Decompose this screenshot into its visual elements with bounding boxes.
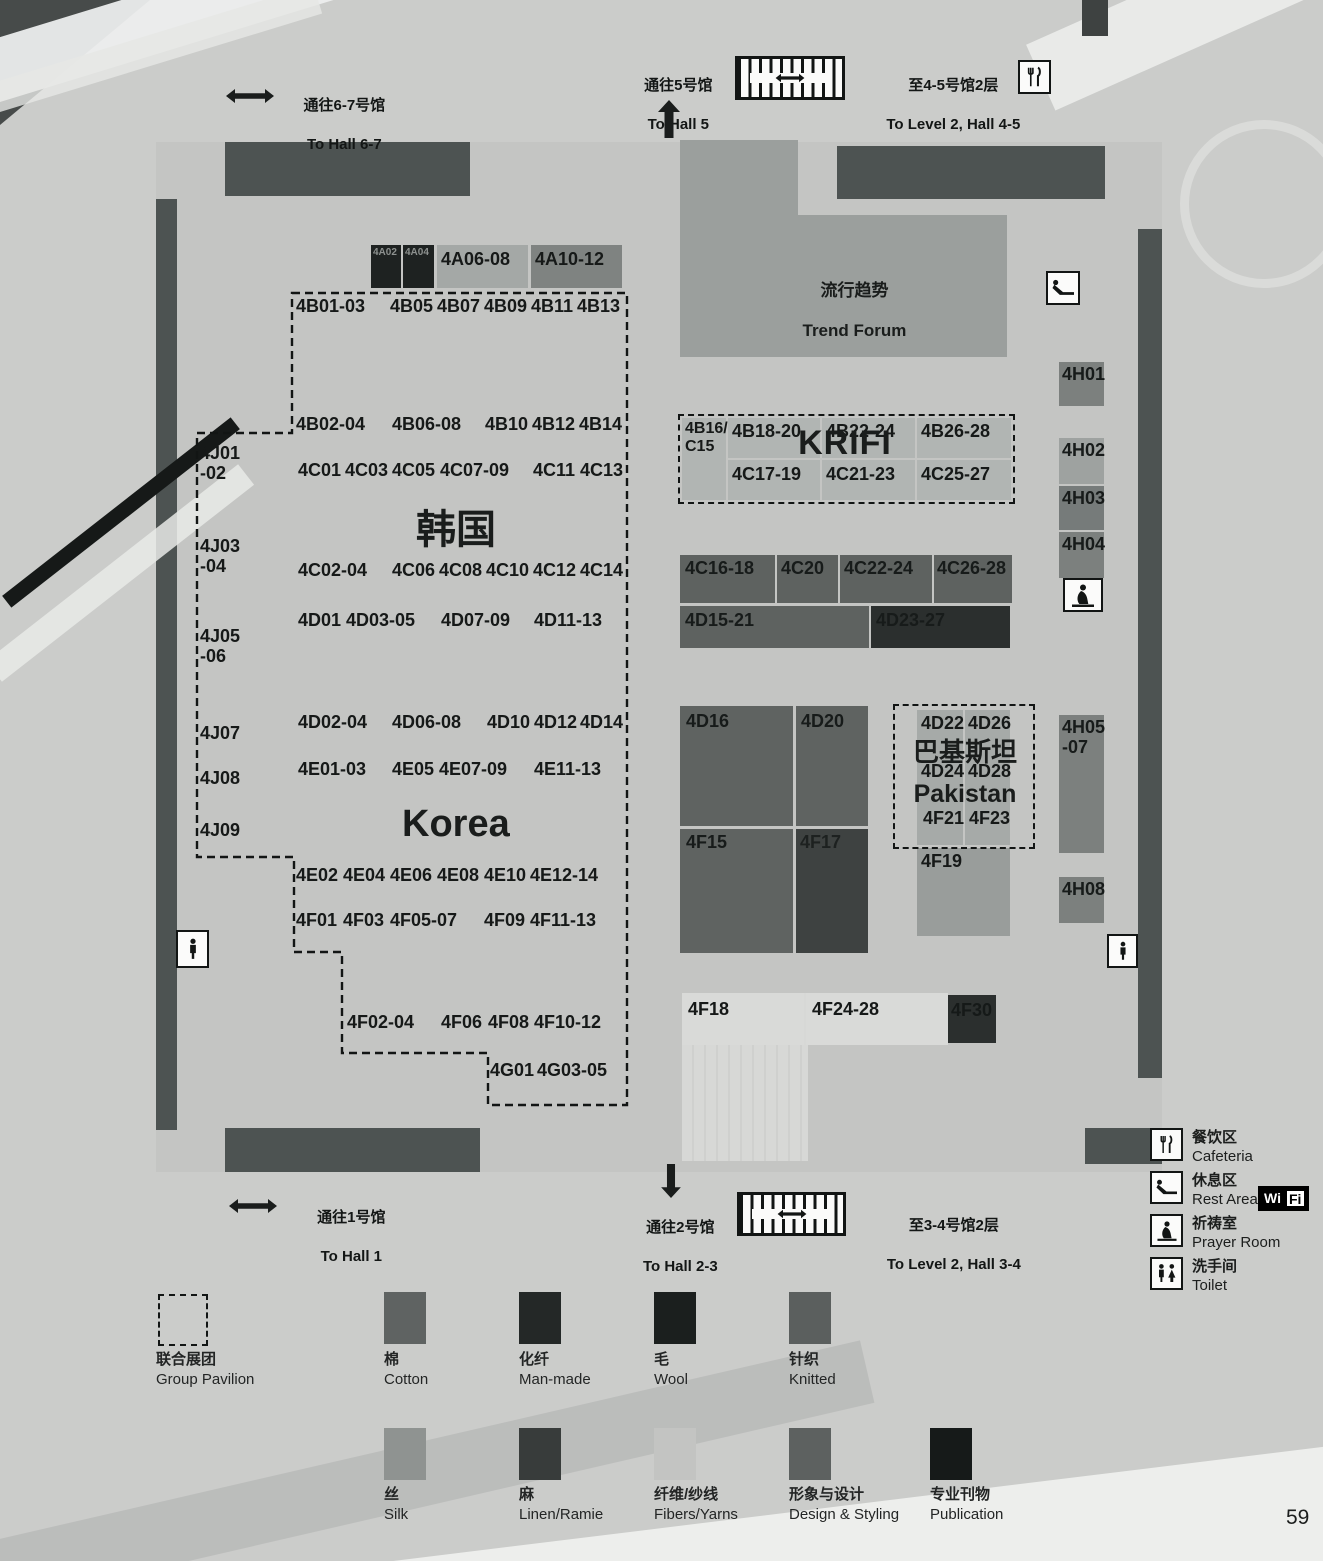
nav-to-level2-hall-4-5: 至4-5号馆2层 To Level 2, Hall 4-5 <box>860 56 1030 155</box>
toilet-label-cn: 洗手间 <box>1192 1257 1237 1277</box>
rest-area-icon <box>1150 1171 1183 1204</box>
cafeteria-label-cn: 餐饮区 <box>1192 1128 1237 1148</box>
booth-4f06: 4F06 <box>441 1012 482 1032</box>
booth-4a04: 4A04 <box>405 247 429 258</box>
booth-4c08: 4C08 <box>439 560 482 580</box>
booth-4f23: 4F23 <box>969 808 1010 828</box>
booth-4e01-03: 4E01-03 <box>298 759 366 779</box>
legend-design-styling-cn: 形象与设计 <box>789 1484 864 1506</box>
nav-to-hall-5-cn: 通往5号馆 <box>644 77 712 94</box>
booth-4h01: 4H01 <box>1062 364 1105 384</box>
booth-4h08: 4H08 <box>1062 879 1105 899</box>
booth-4c03: 4C03 <box>345 460 388 480</box>
toilet-icon <box>1150 1257 1183 1290</box>
booth-4b05: 4B05 <box>390 296 433 316</box>
rest-area-icon <box>1046 271 1080 305</box>
legend-wool-cn: 毛 <box>654 1349 669 1371</box>
booth-4f03: 4F03 <box>343 910 384 930</box>
booth-4g03-05: 4G03-05 <box>537 1060 607 1080</box>
legend-swatch-design-styling <box>789 1428 831 1480</box>
booth-c15: C15 <box>685 438 714 456</box>
stairs-arrow <box>750 73 829 84</box>
prayer-room-label-cn: 祈祷室 <box>1192 1214 1237 1234</box>
booth-4d07-09: 4D07-09 <box>441 610 510 630</box>
legend-design-styling-en: Design & Styling <box>789 1504 899 1526</box>
booth-4d28: 4D28 <box>968 761 1011 781</box>
booth-4b26-28: 4B26-28 <box>921 421 990 441</box>
booth-4d22: 4D22 <box>921 713 964 733</box>
booth-4b12: 4B12 <box>532 414 575 434</box>
booth-4h05: 4H05 <box>1062 717 1105 737</box>
prayer-room-label-en: Prayer Room <box>1192 1233 1280 1253</box>
booth-4d16: 4D16 <box>686 711 729 731</box>
booth-4f05-07: 4F05-07 <box>390 910 457 930</box>
stairs-to-level2-hall34 <box>737 1192 846 1236</box>
booth-4a10-12: 4A10-12 <box>535 249 604 269</box>
legend-swatch-publication <box>930 1428 972 1480</box>
booth-4b16: 4B16/ <box>685 420 728 438</box>
booth-4e10: 4E10 <box>484 865 526 885</box>
booth-4h05-07: -07 <box>1062 737 1088 757</box>
legend-publication-cn: 专业刊物 <box>930 1484 990 1506</box>
booth-4c26-28: 4C26-28 <box>937 558 1006 578</box>
toilet-icon-left <box>176 930 209 968</box>
booth-4b13: 4B13 <box>577 296 620 316</box>
nav-to-level2-hall-3-4: 至3-4号馆2层 To Level 2, Hall 3-4 <box>858 1196 1033 1295</box>
booth-4f17: 4F17 <box>800 832 841 852</box>
up-arrow-icon <box>658 100 680 138</box>
nav-to-hall-2-3-cn: 通往2号馆 <box>646 1219 714 1236</box>
booth-4d20: 4D20 <box>801 711 844 731</box>
booth-4j09: 4J09 <box>200 820 240 840</box>
booth-4b07: 4B07 <box>437 296 480 316</box>
cafeteria-label-en: Cafeteria <box>1192 1147 1253 1167</box>
booth-4j01-02: -02 <box>200 463 226 483</box>
booth-4j05: 4J05 <box>200 626 240 646</box>
booth-4f24-28: 4F24-28 <box>812 999 879 1019</box>
booth-4c10: 4C10 <box>486 560 529 580</box>
pakistan-label-en: Pakistan <box>893 780 1037 809</box>
legend-silk-en: Silk <box>384 1504 408 1526</box>
booth-4c16-18: 4C16-18 <box>685 558 754 578</box>
booth-4f19: 4F19 <box>921 851 962 871</box>
nav-to-hall-2-3-en: To Hall 2-3 <box>643 1258 718 1275</box>
wifi-badge: Wi Fi <box>1258 1186 1309 1211</box>
stairs-arrow <box>752 1209 830 1220</box>
booth-4e06: 4E06 <box>390 865 432 885</box>
nav-to-hall-6-7-cn: 通往6-7号馆 <box>303 97 385 114</box>
hall-wall-right <box>1138 229 1162 1078</box>
prayer-room-icon <box>1063 578 1103 612</box>
booth-4a02: 4A02 <box>373 247 397 258</box>
pakistan-label-cn: 巴基斯坦 <box>895 732 1035 769</box>
booth-4e05: 4E05 <box>392 759 434 779</box>
booth-4c07-09: 4C07-09 <box>440 460 509 480</box>
booth-4b02-04: 4B02-04 <box>296 414 365 434</box>
nav-to-hall-2-3: 通往2号馆 To Hall 2-3 <box>616 1198 728 1297</box>
trend-forum-en: Trend Forum <box>803 321 907 340</box>
booth-4d12: 4D12 <box>534 712 577 732</box>
double-arrow-icon <box>225 86 275 106</box>
legend-publication-en: Publication <box>930 1504 1003 1526</box>
booth-4e02: 4E02 <box>296 865 338 885</box>
korea-label-en: Korea <box>402 803 510 846</box>
trend-forum-cn: 流行趋势 <box>820 281 888 300</box>
toilet-label-en: Toilet <box>1192 1276 1227 1296</box>
nav-to-hall-1-en: To Hall 1 <box>321 1248 382 1265</box>
booth-4g01: 4G01 <box>490 1060 534 1080</box>
booth-4c11: 4C11 <box>533 460 575 480</box>
nav-to-level2-hall-3-4-cn: 至3-4号馆2层 <box>909 1217 999 1234</box>
booth-4b01-03: 4B01-03 <box>296 296 365 316</box>
booth-4c22-24: 4C22-24 <box>844 558 913 578</box>
booth-4f01: 4F01 <box>296 910 337 930</box>
booth-4j03-04: -04 <box>200 556 226 576</box>
legend-man-made-cn: 化纤 <box>519 1349 549 1371</box>
booth-4f11-13: 4F11-13 <box>530 910 596 930</box>
booth-4c01: 4C01 <box>298 460 341 480</box>
scan-mark <box>1082 0 1108 36</box>
booth-4e11-13: 4E11-13 <box>534 759 601 779</box>
booth-4b10: 4B10 <box>485 414 528 434</box>
booth-4j03: 4J03 <box>200 536 240 556</box>
krifi-label: KRIFI <box>760 424 930 463</box>
hall-wall-bottom-left <box>225 1128 480 1172</box>
booth-4b14: 4B14 <box>579 414 622 434</box>
booth-4d03-05: 4D03-05 <box>346 610 415 630</box>
booth-4b09: 4B09 <box>484 296 527 316</box>
legend-swatch-linen-ramie <box>519 1428 561 1480</box>
booth-4j01: 4J01 <box>200 443 240 463</box>
toilet-icon-right <box>1107 934 1138 968</box>
legend-swatch-fibers-yarns <box>654 1428 696 1480</box>
cafeteria-icon <box>1150 1128 1183 1161</box>
booth-4j05-06: -06 <box>200 646 226 666</box>
booth-4d02-04: 4D02-04 <box>298 712 367 732</box>
booth-4d26: 4D26 <box>968 713 1011 733</box>
booth-4d23-27: 4D23-27 <box>876 610 945 630</box>
booth-4c13: 4C13 <box>580 460 623 480</box>
hall-wall-left <box>156 199 177 1130</box>
nav-to-hall-6-7: 通往6-7号馆 To Hall 6-7 <box>280 76 392 175</box>
booth-4c06: 4C06 <box>392 560 435 580</box>
legend-cotton-cn: 棉 <box>384 1349 399 1371</box>
nav-to-level2-hall-3-4-en: To Level 2, Hall 3-4 <box>887 1256 1021 1273</box>
booth-4d11-13: 4D11-13 <box>534 610 602 630</box>
page-number: 59 <box>1286 1506 1309 1530</box>
booth-4f30: 4F30 <box>951 1000 992 1020</box>
legend-linen-ramie-cn: 麻 <box>519 1484 534 1506</box>
down-arrow-icon <box>660 1164 682 1198</box>
legend-group-pavilion-box <box>158 1294 208 1346</box>
wifi-badge-fi: Fi <box>1286 1190 1305 1207</box>
booth-4h03: 4H03 <box>1062 488 1105 508</box>
legend-swatch-man-made <box>519 1292 561 1344</box>
booth-4c17-19: 4C17-19 <box>732 464 801 484</box>
booth-4d14: 4D14 <box>580 712 623 732</box>
double-arrow-icon <box>228 1196 278 1216</box>
wifi-badge-wi: Wi <box>1260 1188 1284 1209</box>
legend-knitted-cn: 针织 <box>789 1349 819 1371</box>
legend-swatch-wool <box>654 1292 696 1344</box>
legend-silk-cn: 丝 <box>384 1484 399 1506</box>
booth-4e12-14: 4E12-14 <box>530 865 598 885</box>
legend-group-pavilion-en: Group Pavilion <box>156 1369 254 1391</box>
booth-4f02-04: 4F02-04 <box>347 1012 414 1032</box>
legend-fibers-yarns-cn: 纤维/纱线 <box>654 1484 718 1506</box>
booth-4e08: 4E08 <box>437 865 479 885</box>
korea-label-cn: 韩国 <box>416 497 496 555</box>
trend-forum-label: 流行趋势 Trend Forum <box>710 256 980 361</box>
booth-4d06-08: 4D06-08 <box>392 712 461 732</box>
scan-arc <box>1180 120 1323 288</box>
booth-4f08: 4F08 <box>488 1012 529 1032</box>
booth-4e07-09: 4E07-09 <box>439 759 507 779</box>
legend-linen-ramie-en: Linen/Ramie <box>519 1504 603 1526</box>
booth-4f21: 4F21 <box>923 808 964 828</box>
floor-plan-page: 流行趋势 Trend Forum 4A02 4A04 4A06-08 4A10-… <box>0 0 1323 1561</box>
booth-4c14: 4C14 <box>580 560 623 580</box>
legend-cotton-en: Cotton <box>384 1369 428 1391</box>
booth-4f09: 4F09 <box>484 910 525 930</box>
booth-4c25-27: 4C25-27 <box>921 464 990 484</box>
nav-to-level2-hall-4-5-cn: 至4-5号馆2层 <box>908 77 998 94</box>
booth-4a06-08: 4A06-08 <box>441 249 510 269</box>
nav-to-hall-6-7-en: To Hall 6-7 <box>307 136 382 153</box>
legend-swatch-cotton <box>384 1292 426 1344</box>
legend-swatch-knitted <box>789 1292 831 1344</box>
booth-4f15: 4F15 <box>686 832 727 852</box>
scan-streak <box>1026 0 1323 111</box>
nav-to-hall-1-cn: 通往1号馆 <box>317 1209 385 1226</box>
rest-area-label-en: Rest Area <box>1192 1190 1258 1210</box>
booth-4h04: 4H04 <box>1062 534 1105 554</box>
legend-man-made-en: Man-made <box>519 1369 591 1391</box>
booth-4b06-08: 4B06-08 <box>392 414 461 434</box>
booth-4c21-23: 4C21-23 <box>826 464 895 484</box>
booth-4c02-04: 4C02-04 <box>298 560 367 580</box>
rest-area-label-cn: 休息区 <box>1192 1171 1237 1191</box>
booth-4j07: 4J07 <box>200 723 240 743</box>
legend-knitted-en: Knitted <box>789 1369 836 1391</box>
booth-4h02: 4H02 <box>1062 440 1105 460</box>
prayer-room-icon <box>1150 1214 1183 1247</box>
booth-4d10: 4D10 <box>487 712 530 732</box>
booth-4c05: 4C05 <box>392 460 435 480</box>
stairs-to-level2-hall45 <box>735 56 845 100</box>
booth-4b11: 4B11 <box>531 296 573 316</box>
booth-4d01: 4D01 <box>298 610 341 630</box>
legend-wool-en: Wool <box>654 1369 688 1391</box>
legend-fibers-yarns-en: Fibers/Yarns <box>654 1504 738 1526</box>
booth-4e04: 4E04 <box>343 865 385 885</box>
booth-4f18: 4F18 <box>688 999 729 1019</box>
legend-swatch-silk <box>384 1428 426 1480</box>
legend-group-pavilion-cn: 联合展团 <box>156 1349 216 1371</box>
nav-to-level2-hall-4-5-en: To Level 2, Hall 4-5 <box>886 116 1020 133</box>
booth-4f10-12: 4F10-12 <box>534 1012 601 1032</box>
booth-4d15-21: 4D15-21 <box>685 610 754 630</box>
nav-to-hall-1: 通往1号馆 To Hall 1 <box>288 1188 398 1287</box>
booth-4d24: 4D24 <box>921 761 964 781</box>
booth-4c12: 4C12 <box>533 560 576 580</box>
booth-4j08: 4J08 <box>200 768 240 788</box>
booth-4c20: 4C20 <box>781 558 824 578</box>
